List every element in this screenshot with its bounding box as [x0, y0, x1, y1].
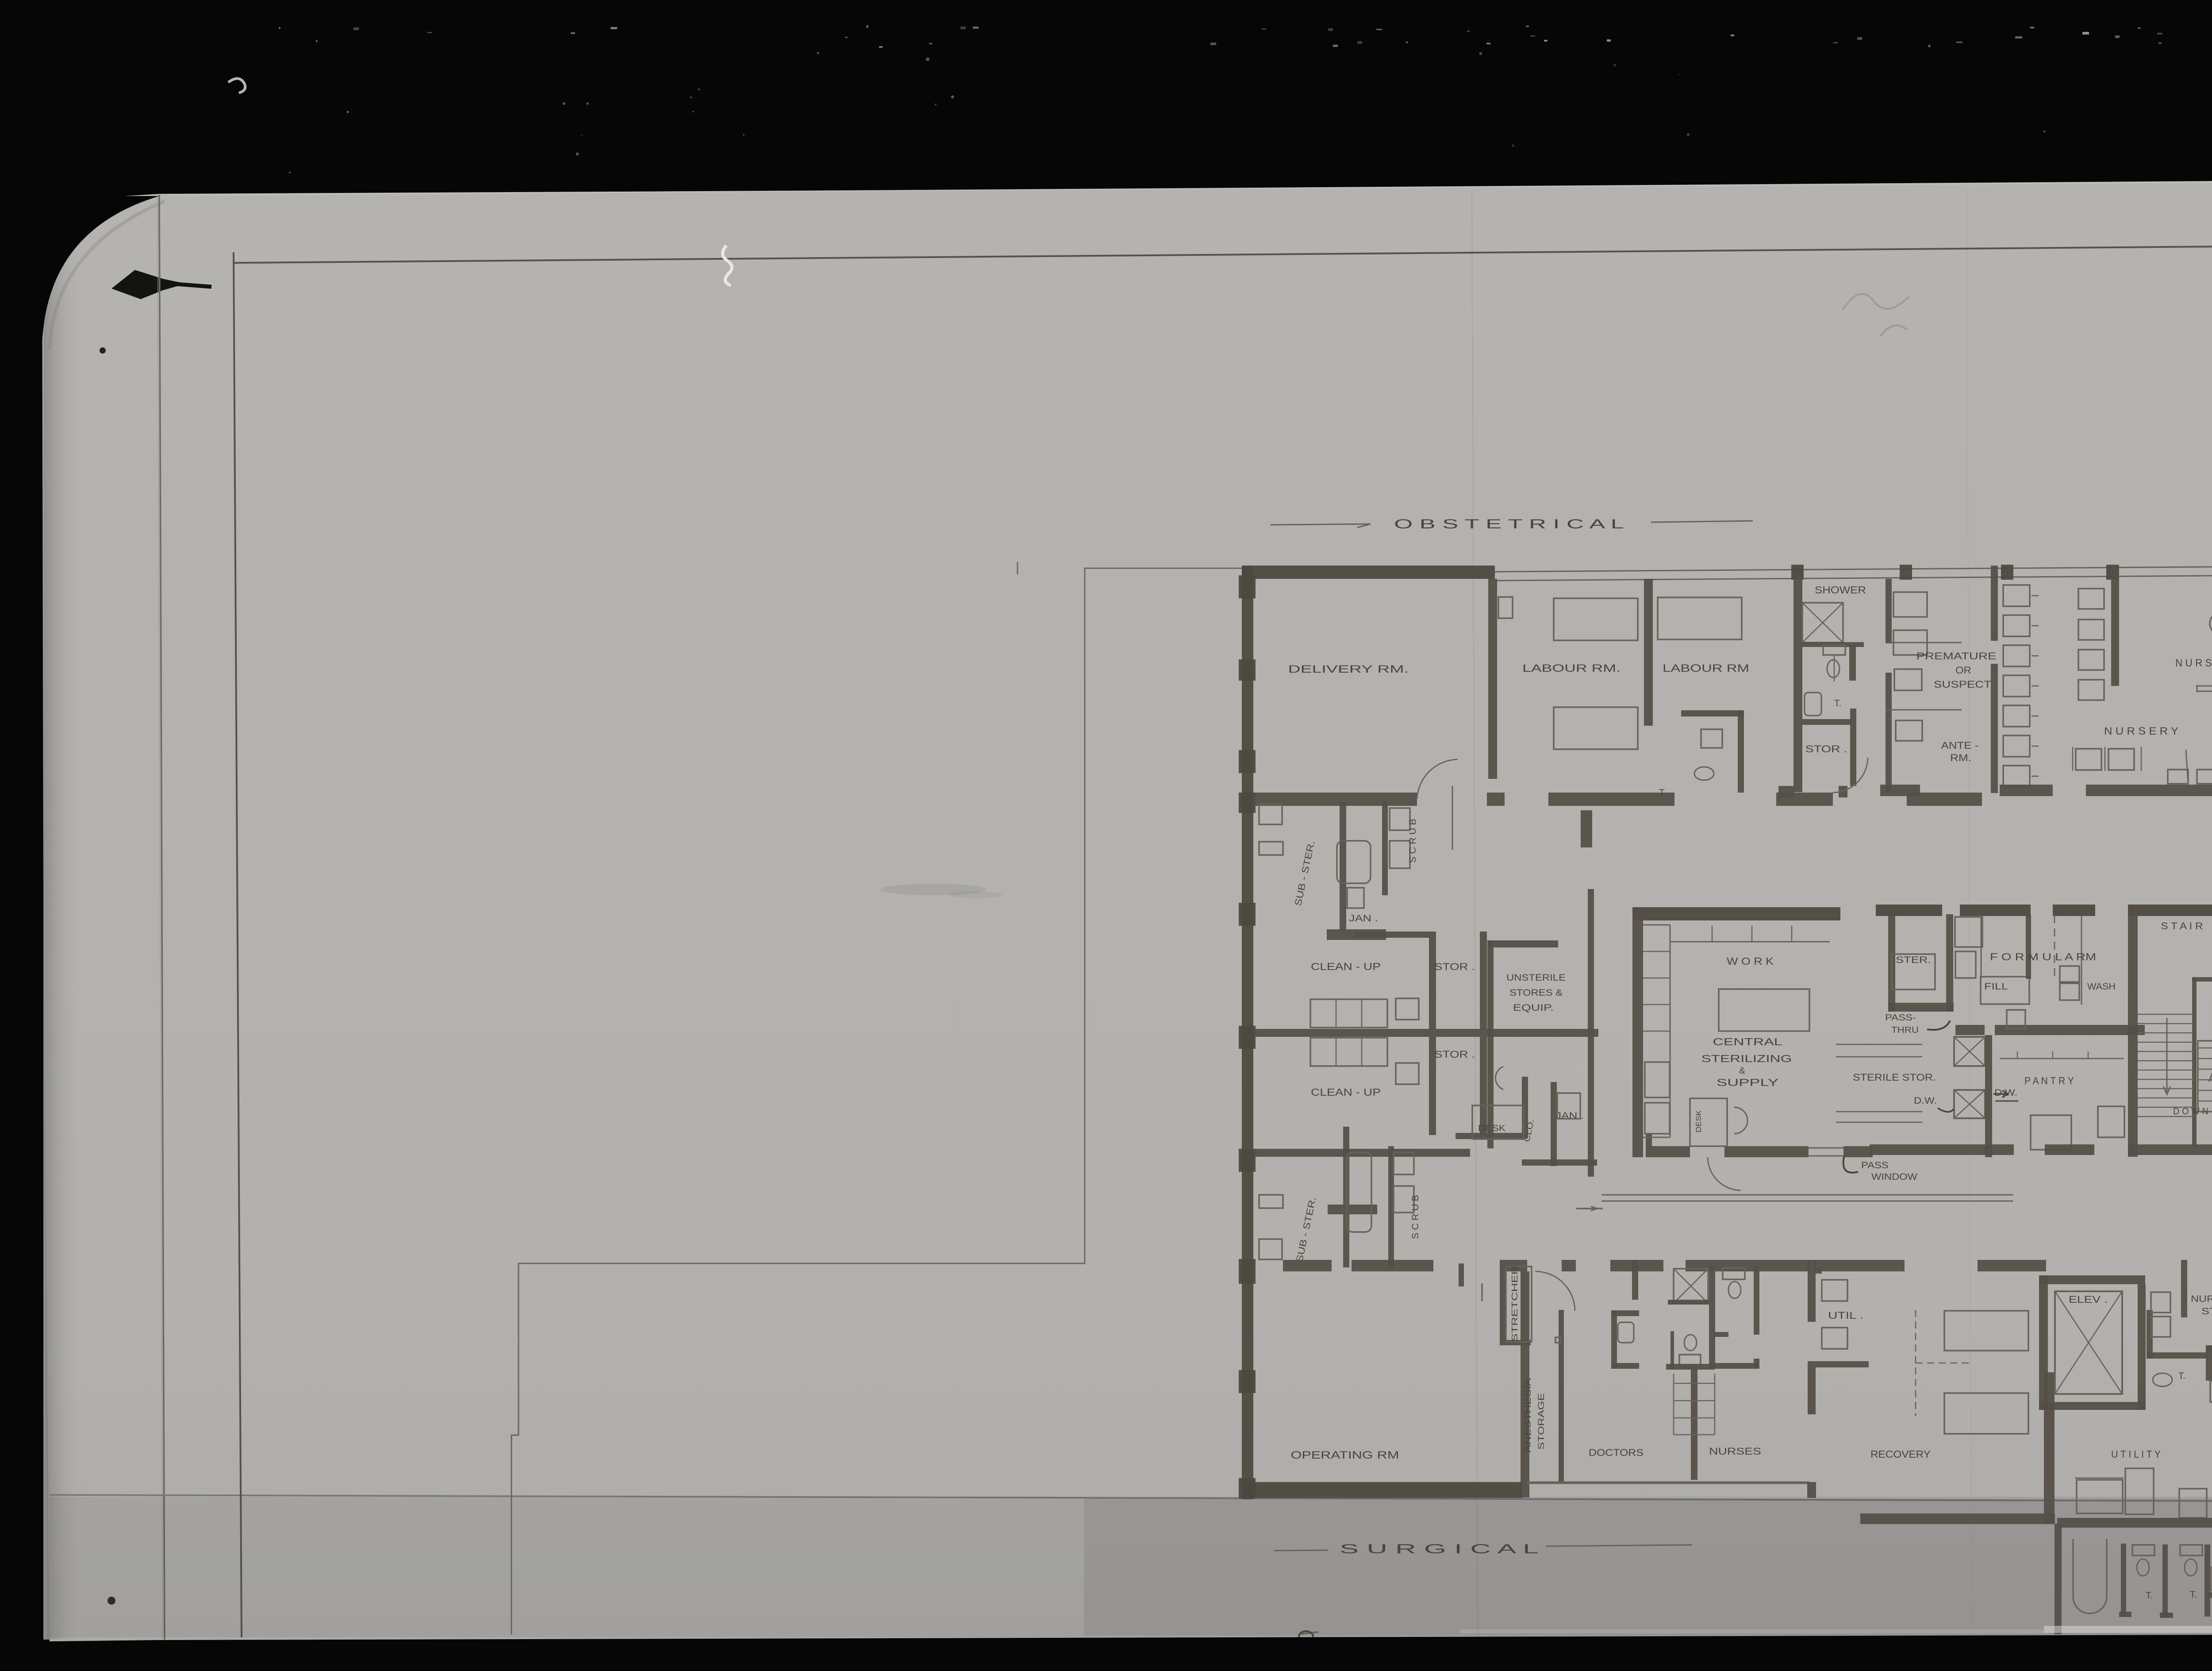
svg-text:T.: T.	[2146, 1590, 2153, 1601]
svg-text:&: &	[1739, 1066, 1745, 1076]
svg-text:N U R S E R Y: N U R S E R Y	[2104, 725, 2178, 737]
svg-text:JAN .: JAN .	[1349, 913, 1378, 924]
svg-text:DELIVERY RM.: DELIVERY RM.	[1288, 663, 1409, 675]
svg-text:RECOVERY: RECOVERY	[1870, 1448, 1931, 1460]
svg-text:DESK: DESK	[1478, 1124, 1506, 1133]
svg-text:NURSES: NURSES	[1709, 1446, 1761, 1457]
svg-text:T.: T.	[2178, 1371, 2185, 1381]
svg-text:STRETCHER: STRETCHER	[1510, 1266, 1519, 1342]
svg-text:STOR .: STOR .	[1805, 743, 1847, 755]
svg-text:STORES &: STORES &	[1509, 988, 1563, 998]
svg-text:D O W N: D O W N	[2173, 1106, 2208, 1117]
svg-text:T.: T.	[1834, 698, 1841, 708]
svg-text:P A N T R Y: P A N T R Y	[2024, 1075, 2074, 1086]
svg-text:PASS: PASS	[1861, 1160, 1889, 1170]
svg-text:F O R M U L A RM: F O R M U L A RM	[1990, 951, 2096, 963]
svg-text:S T A I R: S T A I R	[2161, 920, 2203, 932]
svg-text:LABOUR RM.: LABOUR RM.	[1522, 662, 1621, 674]
svg-text:FILL: FILL	[1984, 982, 2008, 992]
svg-text:RM.: RM.	[1950, 752, 1971, 763]
svg-text:ELEV .: ELEV .	[2069, 1294, 2108, 1305]
svg-text:STA .: STA .	[2201, 1306, 2212, 1317]
svg-text:O B S T E T R I C A L: O B S T E T R I C A L	[1394, 517, 1624, 531]
svg-text:S C R U B: S C R U B	[1408, 819, 1418, 863]
svg-text:STERILIZING: STERILIZING	[1701, 1053, 1792, 1064]
svg-text:NURSES: NURSES	[2191, 1294, 2212, 1304]
svg-text:STOR .: STOR .	[1434, 961, 1475, 972]
svg-text:T.: T.	[2190, 1590, 2197, 1600]
svg-text:U T I L I T Y: U T I L I T Y	[2111, 1448, 2161, 1460]
svg-text:CLEAN - UP: CLEAN - UP	[1311, 961, 1381, 972]
svg-text:S C R U B: S C R U B	[1410, 1195, 1421, 1239]
svg-text:PREMATURE: PREMATURE	[1916, 651, 1997, 662]
svg-text:WASH: WASH	[2087, 982, 2116, 992]
svg-text:DESK: DESK	[1694, 1110, 1703, 1132]
svg-text:W O R K: W O R K	[1727, 955, 1774, 967]
svg-text:LABOUR RM: LABOUR RM	[1663, 662, 1749, 674]
svg-text:DOCTORS: DOCTORS	[1589, 1447, 1644, 1458]
svg-text:SHOWER: SHOWER	[1815, 584, 1866, 596]
svg-text:STER.: STER.	[1896, 955, 1931, 965]
svg-text:OPERATING RM: OPERATING RM	[1291, 1449, 1399, 1461]
svg-text:S U R G I C A L: S U R G I C A L	[1340, 1542, 1539, 1556]
svg-text:SUPPLY: SUPPLY	[1717, 1077, 1778, 1088]
svg-text:SUSPECT: SUSPECT	[1934, 679, 1991, 690]
svg-text:D.W.: D.W.	[1914, 1096, 1937, 1106]
svg-text:T.: T.	[1659, 788, 1666, 798]
svg-text:CENTRAL: CENTRAL	[1713, 1036, 1782, 1047]
svg-text:CLEAN - UP: CLEAN - UP	[1311, 1086, 1381, 1098]
svg-text:THRU: THRU	[1891, 1025, 1919, 1035]
svg-text:UTIL .: UTIL .	[1828, 1310, 1863, 1321]
svg-text:ANTE -: ANTE -	[1941, 740, 1979, 751]
svg-text:ANESTHESIA: ANESTHESIA	[1524, 1378, 1533, 1452]
svg-text:STORAGE: STORAGE	[1537, 1393, 1546, 1450]
svg-text:N U R S E: N U R S E	[2175, 657, 2212, 669]
svg-text:STOR .: STOR .	[1434, 1049, 1475, 1060]
svg-text:OR: OR	[1955, 665, 1971, 676]
svg-text:UNSTERILE: UNSTERILE	[1506, 973, 1566, 983]
svg-text:EQUIP.: EQUIP.	[1513, 1003, 1554, 1013]
svg-text:PASS-: PASS-	[1885, 1013, 1916, 1023]
svg-text:WINDOW: WINDOW	[1871, 1172, 1917, 1182]
svg-text:STERILE STOR.: STERILE STOR.	[1853, 1072, 1936, 1083]
